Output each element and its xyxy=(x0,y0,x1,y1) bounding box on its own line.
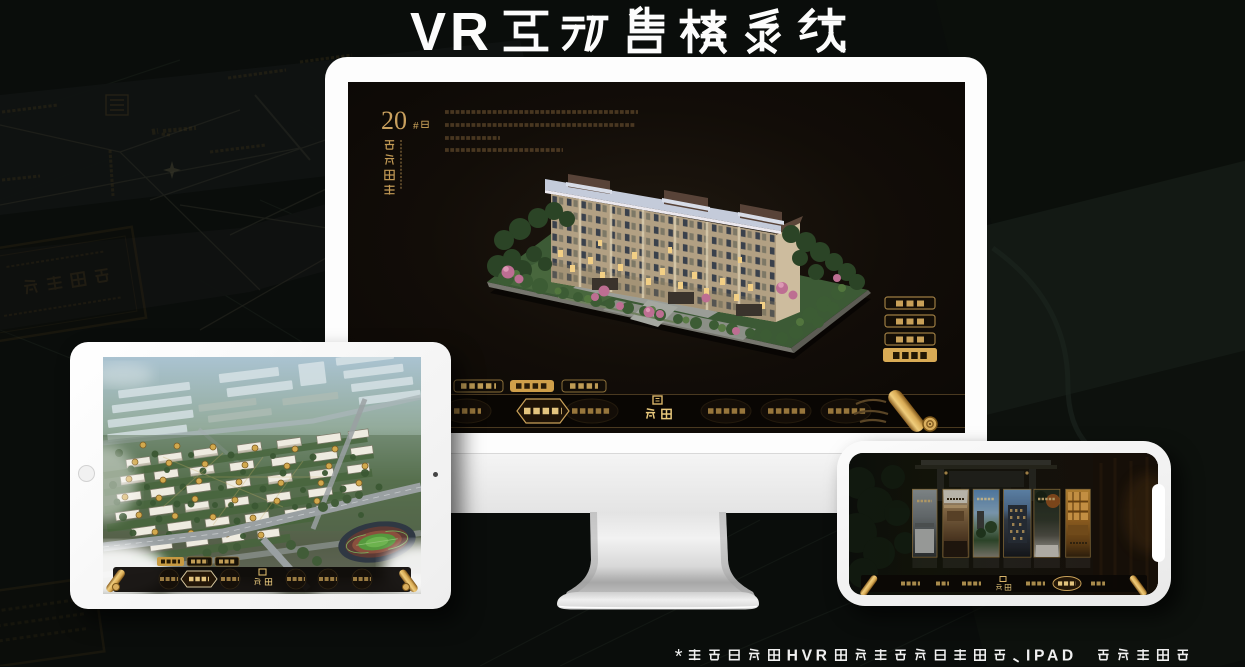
svg-text:HVR: HVR xyxy=(787,648,831,665)
svg-text:20: 20 xyxy=(381,106,407,135)
svg-text:#: # xyxy=(413,121,419,132)
svg-text:VR: VR xyxy=(410,2,493,60)
svg-text:IPAD: IPAD xyxy=(1026,648,1077,665)
svg-text:*: * xyxy=(675,646,683,667)
